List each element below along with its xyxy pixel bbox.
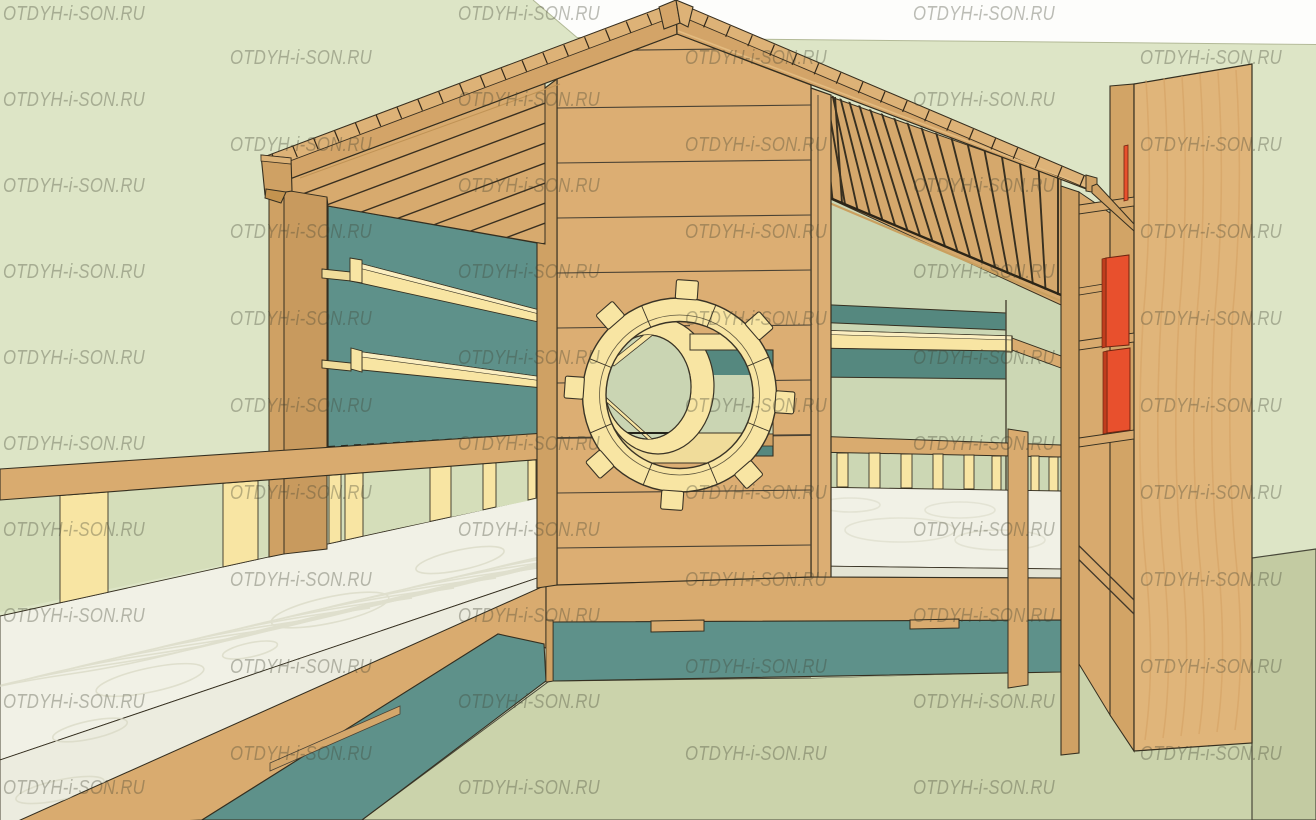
svg-text:OTDYH-i-SON.RU: OTDYH-i-SON.RU: [3, 777, 145, 799]
svg-text:OTDYH-i-SON.RU: OTDYH-i-SON.RU: [913, 347, 1055, 369]
svg-text:OTDYH-i-SON.RU: OTDYH-i-SON.RU: [458, 691, 600, 713]
svg-text:OTDYH-i-SON.RU: OTDYH-i-SON.RU: [230, 569, 372, 591]
svg-text:OTDYH-i-SON.RU: OTDYH-i-SON.RU: [913, 691, 1055, 713]
svg-text:OTDYH-i-SON.RU: OTDYH-i-SON.RU: [458, 175, 600, 197]
svg-text:OTDYH-i-SON.RU: OTDYH-i-SON.RU: [3, 175, 145, 197]
svg-text:OTDYH-i-SON.RU: OTDYH-i-SON.RU: [685, 308, 827, 330]
svg-text:OTDYH-i-SON.RU: OTDYH-i-SON.RU: [685, 134, 827, 156]
svg-text:OTDYH-i-SON.RU: OTDYH-i-SON.RU: [458, 261, 600, 283]
svg-text:OTDYH-i-SON.RU: OTDYH-i-SON.RU: [230, 134, 372, 156]
svg-text:OTDYH-i-SON.RU: OTDYH-i-SON.RU: [1140, 569, 1282, 591]
svg-text:OTDYH-i-SON.RU: OTDYH-i-SON.RU: [458, 347, 600, 369]
svg-text:OTDYH-i-SON.RU: OTDYH-i-SON.RU: [913, 605, 1055, 627]
svg-text:OTDYH-i-SON.RU: OTDYH-i-SON.RU: [3, 519, 145, 541]
svg-text:OTDYH-i-SON.RU: OTDYH-i-SON.RU: [3, 605, 145, 627]
svg-text:OTDYH-i-SON.RU: OTDYH-i-SON.RU: [3, 261, 145, 283]
svg-text:OTDYH-i-SON.RU: OTDYH-i-SON.RU: [685, 221, 827, 243]
svg-text:OTDYH-i-SON.RU: OTDYH-i-SON.RU: [913, 519, 1055, 541]
svg-text:OTDYH-i-SON.RU: OTDYH-i-SON.RU: [458, 777, 600, 799]
svg-text:OTDYH-i-SON.RU: OTDYH-i-SON.RU: [1140, 221, 1282, 243]
svg-text:OTDYH-i-SON.RU: OTDYH-i-SON.RU: [458, 3, 600, 25]
svg-text:OTDYH-i-SON.RU: OTDYH-i-SON.RU: [685, 569, 827, 591]
svg-text:OTDYH-i-SON.RU: OTDYH-i-SON.RU: [230, 482, 372, 504]
svg-text:OTDYH-i-SON.RU: OTDYH-i-SON.RU: [1140, 395, 1282, 417]
svg-text:OTDYH-i-SON.RU: OTDYH-i-SON.RU: [913, 777, 1055, 799]
svg-text:OTDYH-i-SON.RU: OTDYH-i-SON.RU: [913, 261, 1055, 283]
svg-text:OTDYH-i-SON.RU: OTDYH-i-SON.RU: [1140, 656, 1282, 678]
svg-text:OTDYH-i-SON.RU: OTDYH-i-SON.RU: [3, 347, 145, 369]
svg-text:OTDYH-i-SON.RU: OTDYH-i-SON.RU: [230, 656, 372, 678]
svg-text:OTDYH-i-SON.RU: OTDYH-i-SON.RU: [1140, 743, 1282, 765]
svg-text:OTDYH-i-SON.RU: OTDYH-i-SON.RU: [1140, 308, 1282, 330]
svg-text:OTDYH-i-SON.RU: OTDYH-i-SON.RU: [230, 743, 372, 765]
svg-text:OTDYH-i-SON.RU: OTDYH-i-SON.RU: [3, 89, 145, 111]
svg-text:OTDYH-i-SON.RU: OTDYH-i-SON.RU: [458, 519, 600, 541]
svg-text:OTDYH-i-SON.RU: OTDYH-i-SON.RU: [685, 482, 827, 504]
svg-text:OTDYH-i-SON.RU: OTDYH-i-SON.RU: [230, 308, 372, 330]
svg-text:OTDYH-i-SON.RU: OTDYH-i-SON.RU: [685, 47, 827, 69]
svg-text:OTDYH-i-SON.RU: OTDYH-i-SON.RU: [3, 433, 145, 455]
svg-text:OTDYH-i-SON.RU: OTDYH-i-SON.RU: [913, 89, 1055, 111]
svg-text:OTDYH-i-SON.RU: OTDYH-i-SON.RU: [458, 433, 600, 455]
svg-text:OTDYH-i-SON.RU: OTDYH-i-SON.RU: [913, 3, 1055, 25]
svg-text:OTDYH-i-SON.RU: OTDYH-i-SON.RU: [685, 656, 827, 678]
svg-text:OTDYH-i-SON.RU: OTDYH-i-SON.RU: [458, 605, 600, 627]
svg-text:OTDYH-i-SON.RU: OTDYH-i-SON.RU: [230, 47, 372, 69]
svg-text:OTDYH-i-SON.RU: OTDYH-i-SON.RU: [230, 395, 372, 417]
svg-text:OTDYH-i-SON.RU: OTDYH-i-SON.RU: [458, 89, 600, 111]
svg-text:OTDYH-i-SON.RU: OTDYH-i-SON.RU: [1140, 47, 1282, 69]
svg-text:OTDYH-i-SON.RU: OTDYH-i-SON.RU: [685, 743, 827, 765]
svg-text:OTDYH-i-SON.RU: OTDYH-i-SON.RU: [913, 175, 1055, 197]
svg-text:OTDYH-i-SON.RU: OTDYH-i-SON.RU: [1140, 482, 1282, 504]
svg-text:OTDYH-i-SON.RU: OTDYH-i-SON.RU: [3, 691, 145, 713]
svg-text:OTDYH-i-SON.RU: OTDYH-i-SON.RU: [3, 3, 145, 25]
svg-text:OTDYH-i-SON.RU: OTDYH-i-SON.RU: [230, 221, 372, 243]
svg-text:OTDYH-i-SON.RU: OTDYH-i-SON.RU: [1140, 134, 1282, 156]
svg-text:OTDYH-i-SON.RU: OTDYH-i-SON.RU: [685, 395, 827, 417]
svg-text:OTDYH-i-SON.RU: OTDYH-i-SON.RU: [913, 433, 1055, 455]
